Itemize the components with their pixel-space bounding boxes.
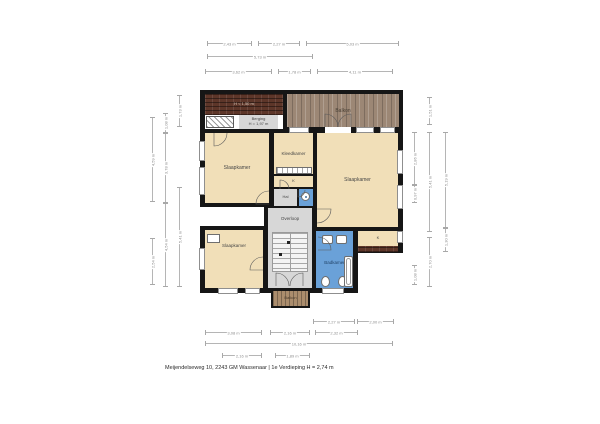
label-slaapkamer-2: Slaapkamer — [344, 177, 371, 183]
dimension-label: 2,54 m — [151, 254, 156, 268]
dimension-v-19: 4,54 m — [165, 203, 166, 287]
window-9 — [289, 127, 309, 133]
dimension-h-7: 2,27 m — [313, 321, 355, 322]
label-balkon-top: Balkon — [335, 108, 350, 114]
dimension-label: 5,41 m — [428, 175, 433, 189]
label-overloop: Overloop — [281, 216, 299, 221]
dimension-label: 5,41 m — [178, 230, 183, 244]
dimension-v-20: 1,73 m — [179, 95, 180, 127]
dimension-label: 1,51 m — [428, 104, 433, 118]
dimension-label: 1,73 m — [178, 104, 183, 118]
dimension-h-0: 2,43 m — [207, 43, 252, 44]
plan-caption: Meijendelseweg 10, 2243 GM Wassenaar | 1… — [165, 365, 334, 371]
dimension-v-21: 5,41 m — [179, 187, 180, 287]
dimension-label: 1,30 m — [444, 233, 449, 247]
dimension-label: 2,16 m — [235, 354, 249, 359]
dimension-label: 2,16 m — [283, 331, 297, 336]
area-balkon-top: Balkon — [287, 94, 399, 127]
dimension-h-2: 5,03 m — [306, 43, 399, 44]
dimension-label: 3,62 m — [231, 70, 245, 75]
dimension-v-17: 1,08 m — [165, 113, 166, 133]
label-berging: BergingH = 1,97 m — [249, 117, 269, 127]
dimension-v-26: 5,41 m — [429, 132, 430, 232]
window-4 — [245, 288, 260, 294]
circle-fixture-2 — [301, 192, 310, 201]
label-roof-low: H < 1,50 m — [234, 102, 254, 107]
area-kast-2-roof — [358, 246, 398, 252]
window-12 — [325, 127, 351, 133]
dimension-label: 5,03 m — [345, 42, 359, 47]
label-balkon-bottom: Balkon — [284, 296, 296, 301]
floorplan-canvas: H < 1,50 mBergingH = 1,97 mBalkonSlaapka… — [0, 0, 600, 424]
box-fixture-3 — [207, 234, 220, 243]
area-kast-1: K — [274, 176, 313, 187]
closet-fixture-1 — [276, 167, 312, 174]
dimension-label: 2,32 m — [329, 331, 343, 336]
dot-fixture-6 — [279, 253, 282, 256]
dimension-h-6: 4,11 m — [317, 71, 393, 72]
dimension-label: 1,08 m — [413, 268, 418, 282]
window-10 — [356, 127, 374, 133]
area-balkon-bottom: Balkon — [273, 291, 308, 306]
dimension-label: 0,97 m — [413, 187, 418, 201]
window-0 — [199, 141, 205, 161]
window-3 — [218, 288, 238, 294]
dimension-v-16: 2,54 m — [152, 238, 153, 285]
area-kast-2: K — [358, 231, 398, 246]
dimension-h-12: 10,16 m — [205, 343, 393, 344]
dimension-label: 1,89 m — [285, 354, 299, 359]
window-6 — [397, 150, 403, 174]
dimension-label: 5,73 m — [253, 55, 267, 60]
area-berging: BergingH = 1,97 m — [239, 115, 278, 129]
dimension-h-5: 1,78 m — [278, 71, 311, 72]
hatch-fixture-0 — [206, 116, 234, 128]
stairs-fixture-4 — [272, 232, 308, 272]
label-kast-1: K — [292, 179, 295, 184]
dimension-v-27: 2,70 m — [429, 237, 430, 287]
area-exterior-notch — [200, 207, 264, 226]
dimension-v-28: 5,19 m — [445, 132, 446, 228]
area-slaapkamer-1: Slaapkamer — [205, 133, 269, 203]
dimension-h-4: 3,62 m — [205, 71, 272, 72]
window-5 — [322, 288, 344, 294]
window-8 — [397, 231, 403, 243]
dimension-v-29: 1,30 m — [445, 228, 446, 252]
label-hal: Hal — [282, 195, 288, 200]
oval-fixture-9 — [321, 276, 330, 287]
window-2 — [199, 248, 205, 270]
dimension-h-13: 2,16 m — [222, 355, 262, 356]
dimension-label: 2,27 m — [272, 42, 286, 47]
area-hal: Hal — [274, 189, 297, 206]
dimension-label: 1,08 m — [164, 116, 169, 130]
dimension-label: 2,43 m — [222, 42, 236, 47]
dimension-h-9: 3,08 m — [205, 332, 262, 333]
dimension-h-8: 2,00 m — [357, 321, 394, 322]
dimension-label: 4,54 m — [164, 238, 169, 252]
dimension-h-11: 2,32 m — [315, 332, 358, 333]
dimension-h-3: 5,73 m — [207, 56, 313, 57]
dimension-v-24: 1,08 m — [414, 265, 415, 285]
dimension-v-15: 4,59 m — [152, 117, 153, 202]
window-7 — [397, 185, 403, 209]
window-11 — [380, 127, 395, 133]
dot-fixture-5 — [287, 241, 290, 244]
label-kast-2: K — [377, 236, 380, 241]
dimension-v-23: 0,97 m — [414, 185, 415, 203]
floorplan-page: H < 1,50 mBergingH = 1,97 mBalkonSlaapka… — [0, 0, 600, 424]
label-badkamer: Badkamer — [324, 260, 345, 265]
dimension-h-1: 2,27 m — [258, 43, 300, 44]
dimension-label: 2,00 m — [368, 320, 382, 325]
label-slaapkamer-3: Slaapkamer — [222, 243, 246, 248]
dimension-h-14: 1,89 m — [275, 355, 310, 356]
dimension-label: 2,27 m — [327, 320, 341, 325]
area-slaapkamer-2: Slaapkamer — [317, 133, 398, 227]
dimension-label: 5,19 m — [444, 173, 449, 187]
dimension-label: 3,78 m — [164, 161, 169, 175]
dimension-h-10: 2,16 m — [270, 332, 310, 333]
roundbox-fixture-8 — [336, 235, 347, 244]
area-roof-low: H < 1,50 m — [205, 94, 283, 115]
dimension-label: 2,70 m — [428, 255, 433, 269]
roundbox-fixture-7 — [322, 235, 333, 244]
window-1 — [199, 167, 205, 195]
dimension-label: 2,86 m — [413, 151, 418, 165]
label-kleedkamer: Kleedkamer — [281, 151, 305, 156]
dimension-label: 10,16 m — [291, 342, 307, 347]
dimension-label: 4,59 m — [151, 152, 156, 166]
dimension-label: 1,78 m — [287, 70, 301, 75]
label-slaapkamer-1: Slaapkamer — [224, 165, 251, 171]
tub-fixture-11 — [344, 256, 353, 287]
dimension-label: 3,08 m — [226, 331, 240, 336]
dimension-v-18: 3,78 m — [165, 133, 166, 203]
dimension-v-25: 1,51 m — [429, 97, 430, 125]
dimension-label: 4,11 m — [348, 70, 362, 75]
dimension-v-22: 2,86 m — [414, 132, 415, 185]
